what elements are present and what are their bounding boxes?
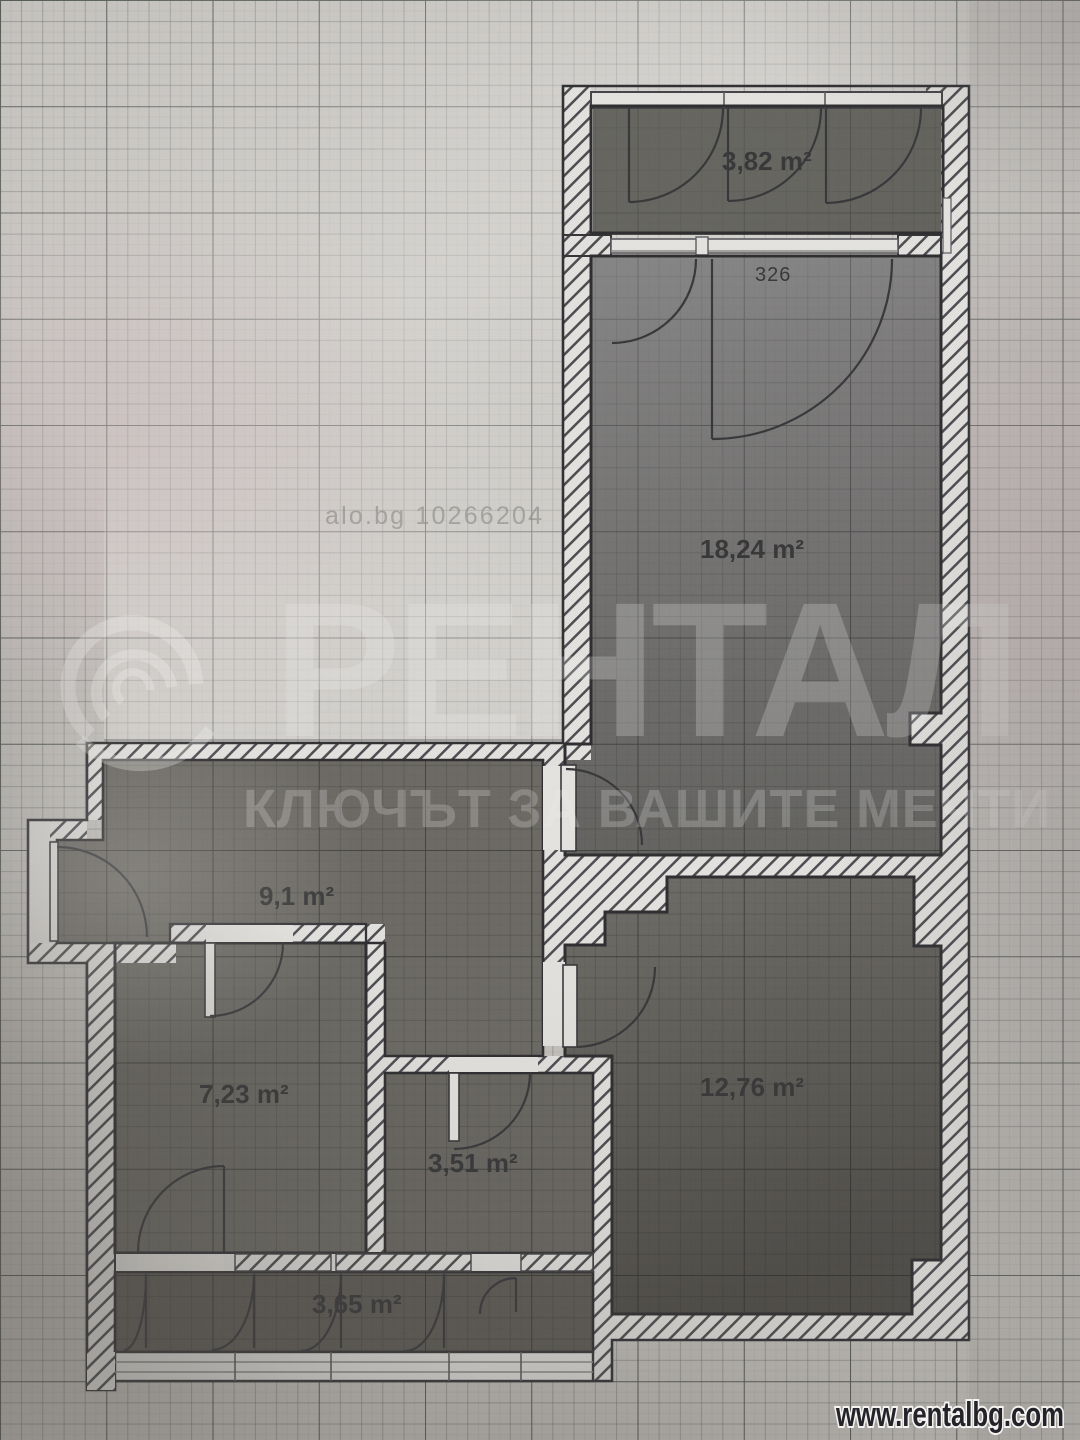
svg-text:www.rentalbg.com: www.rentalbg.com (835, 1396, 1064, 1434)
